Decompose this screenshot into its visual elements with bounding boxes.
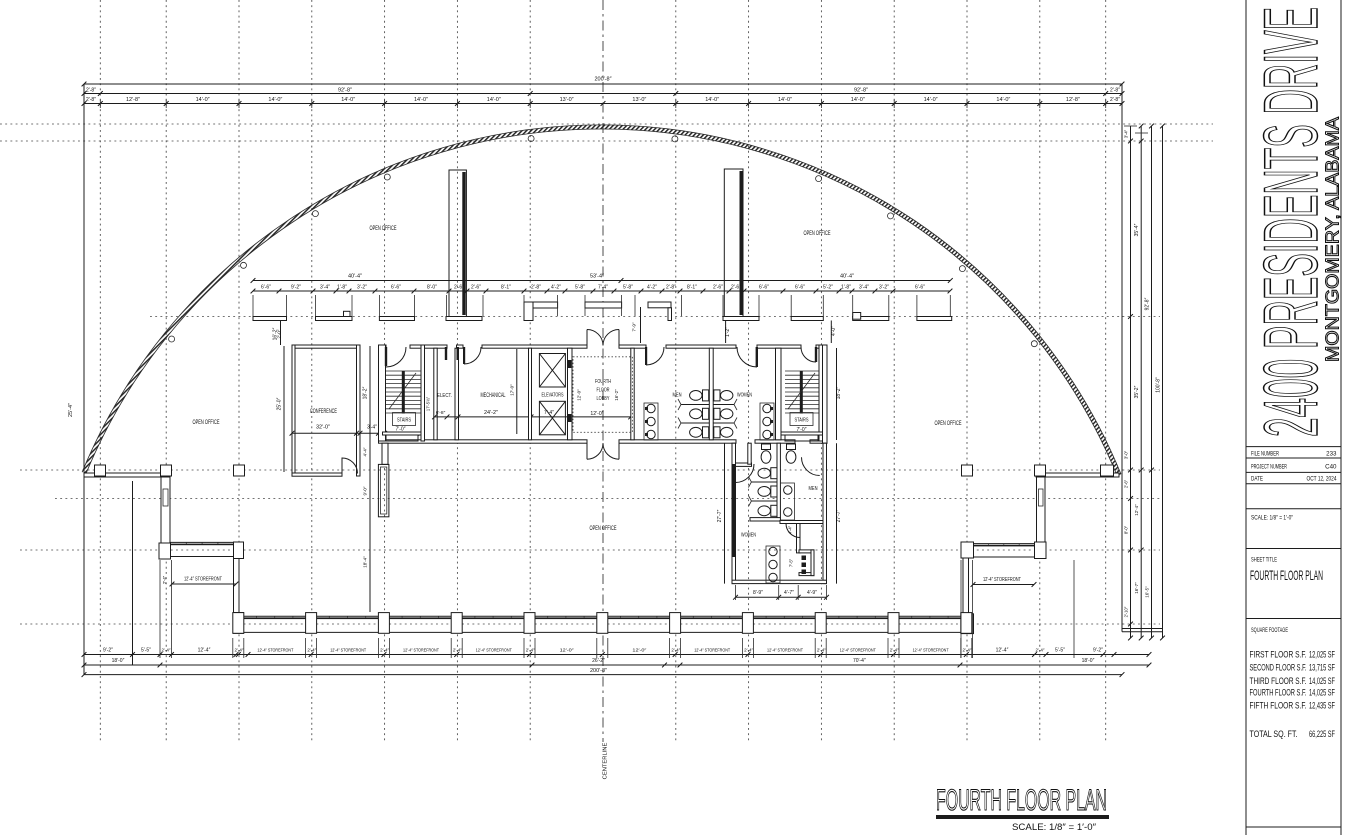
svg-text:14′-0″: 14′-0″ <box>924 97 938 103</box>
svg-text:25′-0″: 25′-0″ <box>277 397 283 410</box>
svg-text:5′-8″: 5′-8″ <box>575 285 585 291</box>
svg-text:24′-2″: 24′-2″ <box>484 410 498 416</box>
svg-text:92′-8″: 92′-8″ <box>338 88 352 94</box>
svg-text:SQUARE FOOTAGE: SQUARE FOOTAGE <box>1251 627 1288 634</box>
svg-text:17′-0″: 17′-0″ <box>509 384 514 396</box>
svg-text:200′-8″: 200′-8″ <box>594 77 611 83</box>
svg-text:2′-6″: 2′-6″ <box>454 285 464 291</box>
svg-text:233: 233 <box>1326 451 1337 458</box>
svg-text:12′-8″: 12′-8″ <box>126 97 140 103</box>
svg-text:3′-4″: 3′-4″ <box>320 285 330 291</box>
svg-text:SECOND FLOOR S.F.: SECOND FLOOR S.F. <box>1250 663 1307 674</box>
svg-text:14,025 SF: 14,025 SF <box>1309 676 1335 687</box>
svg-text:12′-0″: 12′-0″ <box>560 648 574 654</box>
svg-text:4′-4″: 4′-4″ <box>363 447 368 456</box>
svg-text:2′-4″: 2′-4″ <box>744 648 753 653</box>
svg-text:DATE: DATE <box>1251 476 1263 483</box>
svg-text:MEN: MEN <box>809 486 818 492</box>
svg-text:14,025 SF: 14,025 SF <box>1309 688 1335 699</box>
svg-text:27′-7″: 27′-7″ <box>717 509 723 522</box>
svg-text:2400 PRESIDENTS DRIVE: 2400 PRESIDENTS DRIVE <box>1249 7 1334 437</box>
svg-text:PROJECT NUMBER: PROJECT NUMBER <box>1251 464 1287 471</box>
svg-text:2′-8″: 2′-8″ <box>1110 97 1120 103</box>
svg-text:70′-4″: 70′-4″ <box>853 658 866 664</box>
svg-text:4′-4″: 4′-4″ <box>788 525 793 534</box>
svg-text:14′-0″: 14′-0″ <box>268 97 282 103</box>
svg-text:2′-0″: 2′-0″ <box>277 329 282 338</box>
svg-text:LOBBY: LOBBY <box>597 396 610 402</box>
svg-text:FOURTH FLOOR S.F.: FOURTH FLOOR S.F. <box>1250 688 1307 699</box>
svg-text:3′-2″: 3′-2″ <box>879 285 889 291</box>
svg-text:4′-2″: 4′-2″ <box>551 285 561 291</box>
svg-text:53′-4″: 53′-4″ <box>590 274 604 280</box>
svg-text:6′-6″: 6′-6″ <box>391 285 401 291</box>
svg-text:2′-4″: 2′-4″ <box>162 575 167 584</box>
svg-text:5′-2″: 5′-2″ <box>823 285 833 291</box>
svg-text:FOURTH FLOOR PLAN: FOURTH FLOOR PLAN <box>1250 567 1323 583</box>
svg-text:12′-4″ STOREFRONT: 12′-4″ STOREFRONT <box>330 648 366 654</box>
svg-text:2′-4″: 2′-4″ <box>162 648 171 653</box>
svg-text:9′-0″: 9′-0″ <box>363 486 368 495</box>
svg-text:12′-4″ STOREFRONT: 12′-4″ STOREFRONT <box>767 648 803 654</box>
svg-text:2′-8″: 2′-8″ <box>666 285 676 291</box>
svg-text:OCT 12, 2024: OCT 12, 2024 <box>1307 476 1337 483</box>
svg-text:OPEN OFFICE: OPEN OFFICE <box>935 420 962 427</box>
svg-text:18′-2″: 18′-2″ <box>363 386 369 399</box>
svg-text:14′-0″: 14′-0″ <box>778 97 792 103</box>
svg-text:7′-9″: 7′-9″ <box>632 322 637 332</box>
svg-text:STAIRS: STAIRS <box>795 418 809 424</box>
svg-text:ELECT.: ELECT. <box>437 393 452 399</box>
svg-text:66,225 SF: 66,225 SF <box>1309 729 1335 740</box>
svg-text:12′-4″ STOREFRONT: 12′-4″ STOREFRONT <box>913 648 949 654</box>
svg-text:3′-2″: 3′-2″ <box>357 285 367 291</box>
svg-text:6′-6″: 6′-6″ <box>759 285 769 291</box>
svg-text:5′-8″: 5′-8″ <box>623 285 633 291</box>
svg-text:WOMEN: WOMEN <box>737 393 752 399</box>
svg-text:12′-4″: 12′-4″ <box>198 648 211 654</box>
svg-text:8′-0″: 8′-0″ <box>1124 525 1129 534</box>
svg-text:MONTGOMERY, ALABAMA: MONTGOMERY, ALABAMA <box>1323 117 1343 362</box>
svg-text:MEN: MEN <box>673 393 682 399</box>
svg-text:CENTERLINE: CENTERLINE <box>603 743 609 780</box>
svg-text:26′-2″: 26′-2″ <box>592 658 605 664</box>
svg-text:6′-6″: 6′-6″ <box>915 285 925 291</box>
svg-text:1′-2″: 1′-2″ <box>725 327 731 337</box>
svg-text:25′-4″: 25′-4″ <box>68 403 74 417</box>
svg-text:2′-6″: 2′-6″ <box>471 285 481 291</box>
svg-text:6′-6″: 6′-6″ <box>261 285 271 291</box>
svg-text:SCALE: 1/8″ = 1′-0″: SCALE: 1/8″ = 1′-0″ <box>1251 515 1294 522</box>
svg-text:40′-4″: 40′-4″ <box>348 274 362 280</box>
svg-text:ELEVATORS: ELEVATORS <box>542 393 564 399</box>
svg-text:13′-0″: 13′-0″ <box>632 97 646 103</box>
svg-text:8′-1″: 8′-1″ <box>501 285 511 291</box>
svg-text:2′-6″: 2′-6″ <box>1124 479 1129 488</box>
svg-text:1′-8″: 1′-8″ <box>841 285 851 291</box>
svg-text:2′-8″: 2′-8″ <box>1110 88 1120 94</box>
svg-text:12′-4″ STOREFRONT: 12′-4″ STOREFRONT <box>983 577 1021 583</box>
svg-text:8′-1″: 8′-1″ <box>687 285 697 291</box>
svg-text:CONFERENCE: CONFERENCE <box>310 408 337 415</box>
svg-text:FIFTH FLOOR S.F.: FIFTH FLOOR S.F. <box>1250 701 1307 712</box>
svg-text:14′-0″: 14′-0″ <box>341 97 355 103</box>
svg-text:18′-4″: 18′-4″ <box>363 556 368 568</box>
svg-text:14′-0″: 14′-0″ <box>196 97 210 103</box>
svg-text:35′-2″: 35′-2″ <box>1134 385 1140 398</box>
svg-text:92′-8″: 92′-8″ <box>854 88 868 94</box>
svg-text:3′-4″: 3′-4″ <box>367 425 377 431</box>
svg-text:40′-4″: 40′-4″ <box>840 274 854 280</box>
svg-text:C40: C40 <box>1325 464 1337 471</box>
svg-text:FLOOR: FLOOR <box>597 388 610 394</box>
svg-text:2′-4″: 2′-4″ <box>1036 648 1045 653</box>
svg-text:12′-4″ STOREFRONT: 12′-4″ STOREFRONT <box>184 577 222 583</box>
svg-text:THIRD FLOOR S.F.: THIRD FLOOR S.F. <box>1250 676 1307 687</box>
svg-text:12′-0″: 12′-0″ <box>632 648 646 654</box>
svg-text:3′-4″: 3′-4″ <box>1124 129 1129 138</box>
svg-text:8′-9″: 8′-9″ <box>753 590 763 596</box>
svg-text:2′-6″: 2′-6″ <box>713 285 723 291</box>
svg-text:200′-8″: 200′-8″ <box>590 668 607 674</box>
svg-text:2′-4″: 2′-4″ <box>890 648 899 653</box>
svg-text:14′-0″: 14′-0″ <box>996 97 1010 103</box>
svg-text:16′-2″: 16′-2″ <box>614 389 619 401</box>
svg-text:4′-9″: 4′-9″ <box>807 590 817 596</box>
svg-text:18′-0″: 18′-0″ <box>1082 658 1095 664</box>
svg-text:4′-2″: 4′-2″ <box>647 285 657 291</box>
svg-text:100′-8″: 100′-8″ <box>1156 377 1162 393</box>
svg-text:FIRST FLOOR S.F.: FIRST FLOOR S.F. <box>1250 650 1307 661</box>
svg-text:7′-5″: 7′-5″ <box>789 558 794 567</box>
svg-text:92′-8″: 92′-8″ <box>1145 297 1151 310</box>
svg-text:OPEN OFFICE: OPEN OFFICE <box>804 230 831 237</box>
svg-text:2′-8″: 2′-8″ <box>86 97 96 103</box>
svg-text:2′-4″: 2′-4″ <box>817 648 826 653</box>
svg-text:3′-0″: 3′-0″ <box>1124 450 1129 459</box>
svg-text:12′-0″: 12′-0″ <box>590 411 603 417</box>
svg-text:8′-0″: 8′-0″ <box>427 285 437 291</box>
svg-text:12′-4″ STOREFRONT: 12′-4″ STOREFRONT <box>694 648 730 654</box>
svg-text:TOTAL SQ. FT.: TOTAL SQ. FT. <box>1250 729 1298 740</box>
svg-text:17′-5¾″: 17′-5¾″ <box>426 396 431 411</box>
svg-text:2′-4″: 2′-4″ <box>526 648 535 653</box>
svg-text:OPEN OFFICE: OPEN OFFICE <box>370 225 397 232</box>
svg-text:6′-6″: 6′-6″ <box>795 285 805 291</box>
svg-text:6′-8″: 6′-8″ <box>436 410 446 416</box>
svg-text:3′-4″: 3′-4″ <box>859 285 869 291</box>
svg-text:14′-0″: 14′-0″ <box>705 97 719 103</box>
svg-text:WOMEN: WOMEN <box>741 533 756 539</box>
svg-text:2′-4″: 2′-4″ <box>671 648 680 653</box>
svg-text:12′-8″: 12′-8″ <box>1066 97 1080 103</box>
svg-text:32′-0″: 32′-0″ <box>316 425 330 431</box>
svg-text:13,715 SF: 13,715 SF <box>1309 663 1335 674</box>
svg-text:18′-0″: 18′-0″ <box>112 658 125 664</box>
svg-text:SHEET TITLE: SHEET TITLE <box>1251 557 1277 564</box>
svg-text:STAIRS: STAIRS <box>397 418 411 424</box>
svg-text:9′-2″: 9′-2″ <box>103 648 113 654</box>
svg-text:2′-4″: 2′-4″ <box>963 648 972 653</box>
svg-text:FOURTH FLOOR PLAN: FOURTH FLOOR PLAN <box>936 784 1107 817</box>
svg-text:1′-8″: 1′-8″ <box>337 285 347 291</box>
svg-text:14′-0″: 14′-0″ <box>414 97 428 103</box>
svg-text:MECHANICAL: MECHANICAL <box>481 393 506 399</box>
svg-text:18′-2″: 18′-2″ <box>836 386 842 399</box>
svg-text:2′-4″: 2′-4″ <box>307 648 316 653</box>
svg-text:12′-4″: 12′-4″ <box>1134 504 1139 516</box>
svg-text:12′-4″ STOREFRONT: 12′-4″ STOREFRONT <box>257 648 293 654</box>
svg-text:12′-4″ STOREFRONT: 12′-4″ STOREFRONT <box>476 648 512 654</box>
svg-text:16′-5″: 16′-5″ <box>1145 586 1150 598</box>
svg-text:9′-2″: 9′-2″ <box>291 285 301 291</box>
svg-text:FOURTH: FOURTH <box>595 379 611 385</box>
svg-text:14′-0″: 14′-0″ <box>487 97 501 103</box>
svg-text:2′-4″: 2′-4″ <box>380 648 389 653</box>
svg-text:16′-7″: 16′-7″ <box>1134 582 1139 594</box>
svg-text:FILE NUMBER: FILE NUMBER <box>1251 451 1279 458</box>
svg-text:12′-0″: 12′-0″ <box>577 389 582 401</box>
svg-text:4′-7″: 4′-7″ <box>784 590 794 596</box>
svg-text:SCALE: 1/8″ = 1′-0″: SCALE: 1/8″ = 1′-0″ <box>1012 822 1097 832</box>
svg-text:27′-7″: 27′-7″ <box>836 509 842 522</box>
svg-text:7′-4″: 7′-4″ <box>598 285 608 291</box>
svg-text:35′-4″: 35′-4″ <box>1134 223 1140 236</box>
svg-text:5′-5″: 5′-5″ <box>1055 648 1065 654</box>
svg-text:2′-8″: 2′-8″ <box>531 285 541 291</box>
svg-text:9′-2″: 9′-2″ <box>1093 648 1103 654</box>
svg-text:13′-0″: 13′-0″ <box>560 97 574 103</box>
svg-text:4′-0″: 4′-0″ <box>831 326 837 336</box>
svg-text:2′-4″: 2′-4″ <box>453 648 462 653</box>
svg-text:5′-5″: 5′-5″ <box>141 648 151 654</box>
svg-text:OPEN OFFICE: OPEN OFFICE <box>590 525 617 532</box>
svg-text:OPEN OFFICE: OPEN OFFICE <box>193 419 220 426</box>
svg-text:12′-4″ STOREFRONT: 12′-4″ STOREFRONT <box>840 648 876 654</box>
svg-text:2′-10″: 2′-10″ <box>1124 606 1129 617</box>
svg-text:12,435 SF: 12,435 SF <box>1309 701 1335 712</box>
svg-text:14′-0″: 14′-0″ <box>851 97 865 103</box>
svg-text:12′-4″: 12′-4″ <box>996 648 1009 654</box>
svg-text:2′-8″: 2′-8″ <box>86 88 96 94</box>
svg-text:12,025 SF: 12,025 SF <box>1309 650 1335 661</box>
svg-text:2′-6″: 2′-6″ <box>731 285 741 291</box>
svg-text:2′-4″: 2′-4″ <box>235 648 244 653</box>
svg-text:12′-4″ STOREFRONT: 12′-4″ STOREFRONT <box>403 648 439 654</box>
